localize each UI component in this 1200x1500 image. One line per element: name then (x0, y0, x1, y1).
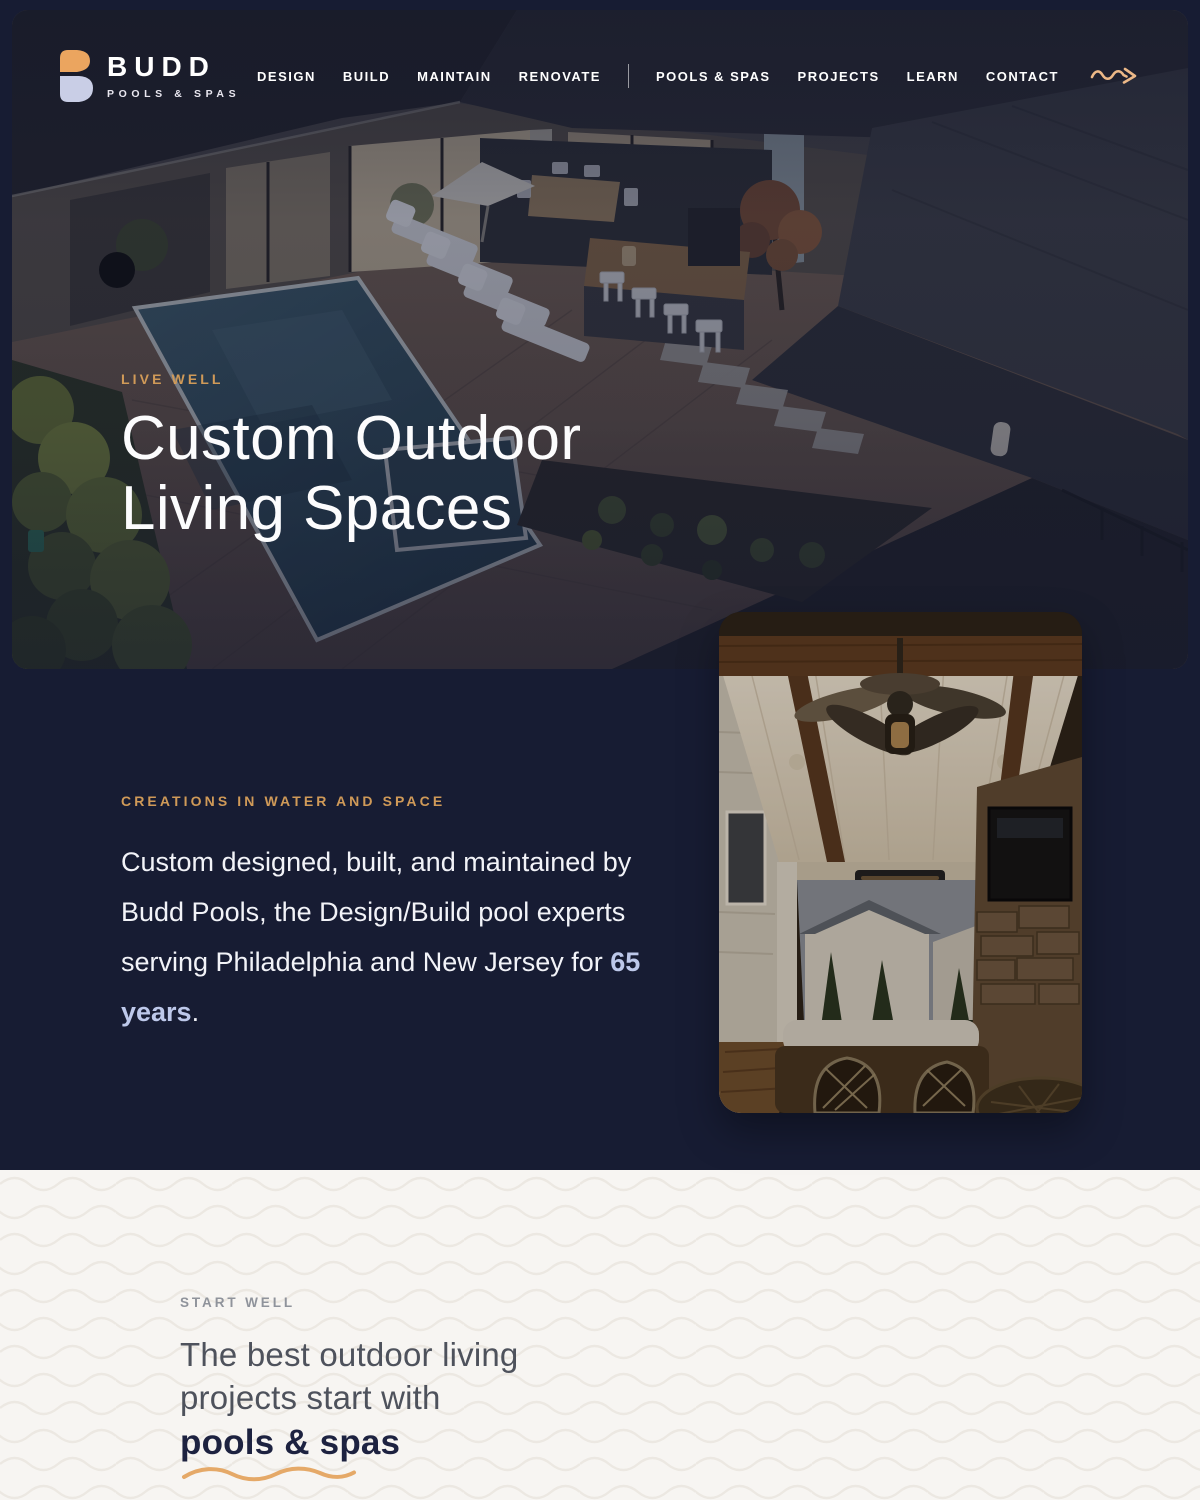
nav-link-renovate[interactable]: RENOVATE (519, 69, 601, 84)
hero-title: Custom Outdoor Living Spaces (121, 404, 581, 544)
hero-title-line2: Living Spaces (121, 474, 581, 544)
start-title-line1: The best outdoor living (180, 1333, 518, 1376)
nav-link-projects[interactable]: PROJECTS (798, 69, 880, 84)
about-content: CREATIONS IN WATER AND SPACE Custom desi… (121, 793, 691, 1037)
nav-link-contact[interactable]: CONTACT (986, 69, 1059, 84)
hero-section: BUDD POOLS & SPAS DESIGN BUILD MAINTAIN … (0, 0, 1200, 669)
about-eyebrow: CREATIONS IN WATER AND SPACE (121, 793, 691, 809)
nav-link-maintain[interactable]: MAINTAIN (417, 69, 492, 84)
main-nav: DESIGN BUILD MAINTAIN RENOVATE POOLS & S… (257, 64, 1138, 88)
start-content: START WELL The best outdoor living proje… (180, 1295, 518, 1483)
nav-link-build[interactable]: BUILD (343, 69, 390, 84)
brand-text: BUDD POOLS & SPAS (107, 53, 240, 100)
hero-title-line1: Custom Outdoor (121, 404, 581, 474)
patio-photo (719, 612, 1082, 1113)
budd-pools-landing-page: BUDD POOLS & SPAS DESIGN BUILD MAINTAIN … (0, 0, 1200, 1500)
brand-name: BUDD (107, 53, 240, 81)
wavy-underline-icon (180, 1465, 358, 1483)
start-highlight-pools-and-spas[interactable]: pools & spas (180, 1421, 518, 1464)
nav-link-learn[interactable]: LEARN (907, 69, 959, 84)
hero-content: LIVE WELL Custom Outdoor Living Spaces (121, 371, 581, 544)
about-text-before: Custom designed, built, and maintained b… (121, 847, 631, 977)
brand-tagline: POOLS & SPAS (107, 88, 240, 100)
start-eyebrow: START WELL (180, 1295, 518, 1310)
nav-link-design[interactable]: DESIGN (257, 69, 316, 84)
nav-link-pools-and-spas[interactable]: POOLS & SPAS (656, 69, 771, 84)
hero-eyebrow: LIVE WELL (121, 371, 581, 387)
brand-logo[interactable]: BUDD POOLS & SPAS (58, 48, 240, 104)
patio-photo-illustration (719, 612, 1082, 1113)
start-title-line2: projects start with (180, 1376, 518, 1419)
about-text-after: . (192, 997, 200, 1027)
budd-logo-icon (58, 48, 94, 104)
about-paragraph: Custom designed, built, and maintained b… (121, 837, 691, 1037)
start-title: The best outdoor living projects start w… (180, 1333, 518, 1464)
hero-dark-overlay (12, 10, 1188, 669)
start-section: START WELL The best outdoor living proje… (0, 1170, 1200, 1500)
site-header: BUDD POOLS & SPAS DESIGN BUILD MAINTAIN … (58, 48, 1138, 104)
squiggle-arrow-right-icon[interactable] (1090, 65, 1138, 87)
nav-divider (628, 64, 629, 88)
